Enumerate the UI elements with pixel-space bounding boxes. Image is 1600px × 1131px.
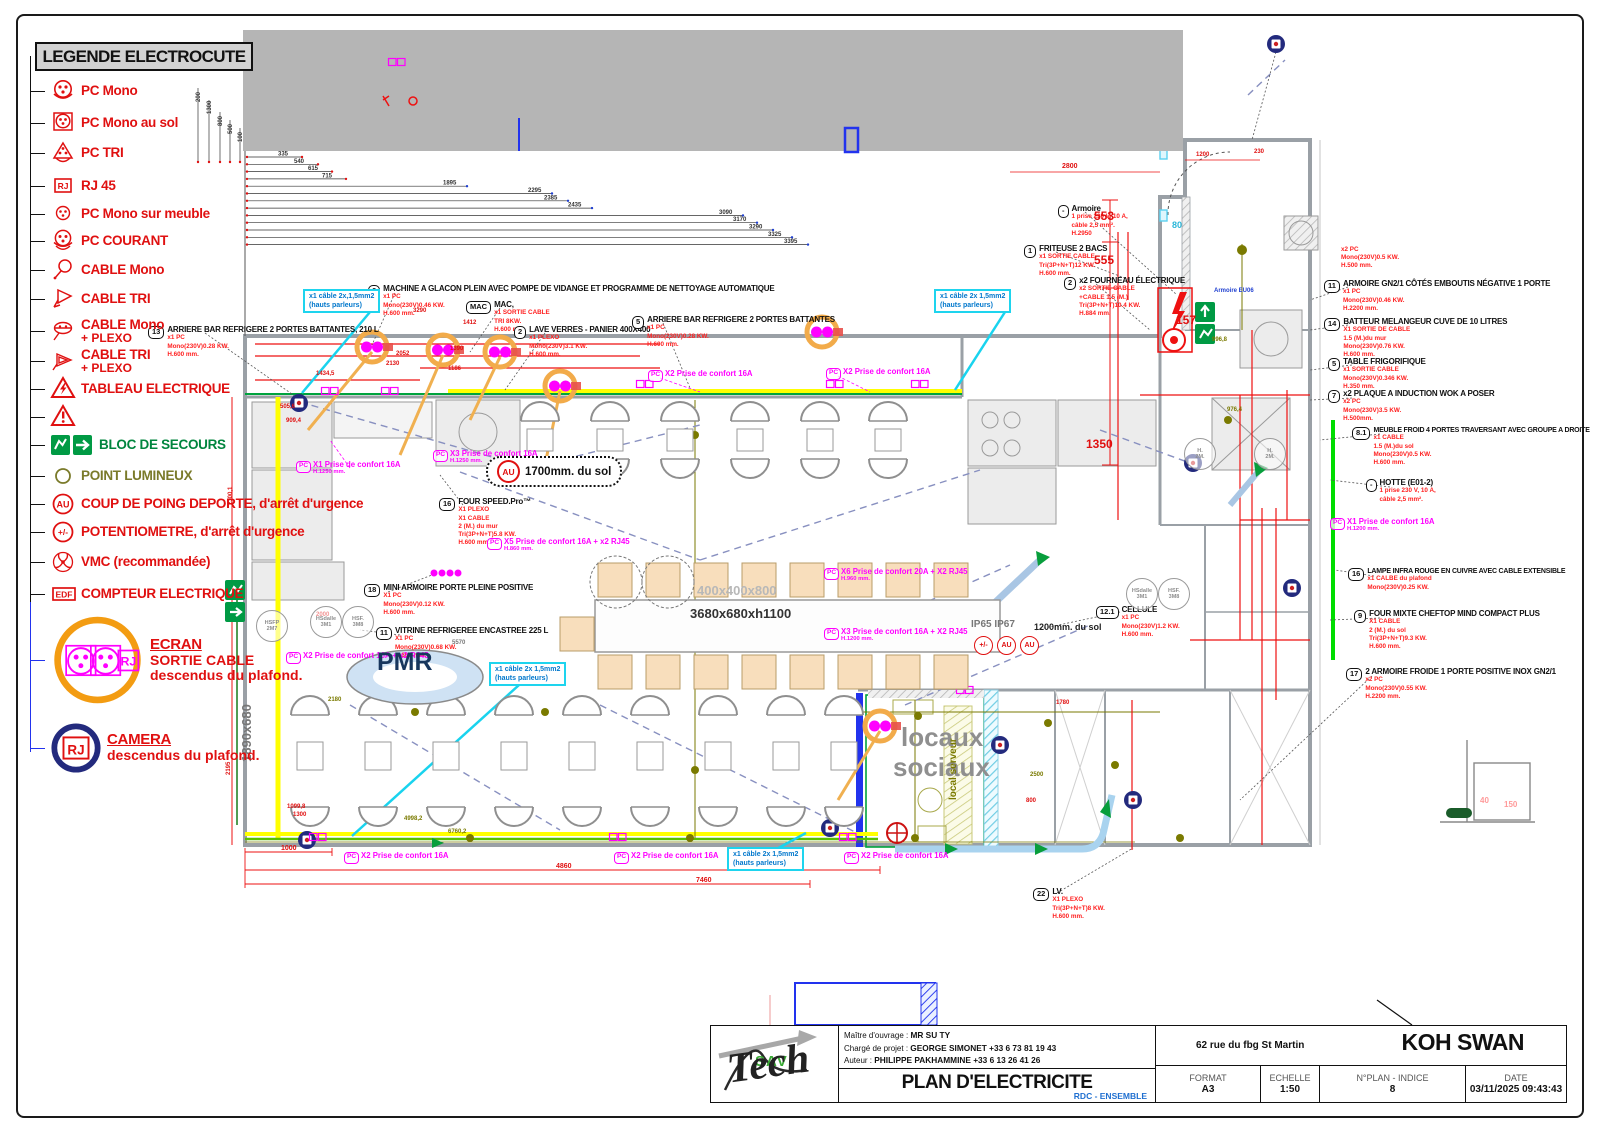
legend-item-label: CABLE Mono bbox=[81, 263, 164, 277]
scale-value: 1:50 bbox=[1280, 1084, 1300, 1095]
title-block-mid: Maître d'ouvrage : MR SU TY Chargé de pr… bbox=[839, 1026, 1156, 1102]
cable-mono-plexo-icon bbox=[50, 319, 76, 345]
legend-stem bbox=[30, 299, 45, 300]
legend-stem bbox=[30, 532, 45, 533]
legend-item-coup-de-poing-deporte-d-arr-t-d-urgence: COUP DE POING DEPORTE, d'arrêt d'urgence bbox=[30, 491, 363, 517]
legend-label-wrap: BLOC DE SECOURS bbox=[99, 438, 226, 452]
plan-number-label: N°PLAN - INDICE bbox=[1356, 1073, 1428, 1083]
legend-item-camera: CAMERAdescendus du plafond. bbox=[30, 722, 259, 774]
legend-label-wrap: PC Mono bbox=[81, 84, 137, 98]
titleblock-extras bbox=[770, 983, 1412, 1025]
legend-item-label: TABLEAU ELECTRIQUE bbox=[81, 382, 230, 396]
potm-icon bbox=[50, 519, 76, 545]
pc-meuble-icon bbox=[50, 201, 76, 227]
legend-item-pc-mono-au-sol: PC Mono au sol bbox=[30, 110, 178, 136]
title-block-cells: FORMAT A3 ECHELLE 1:50 N°PLAN - INDICE 8… bbox=[1156, 1066, 1566, 1102]
legend-item-pc-tri: PC TRI bbox=[30, 140, 123, 166]
legend-item-label: PC Mono sur meuble bbox=[81, 207, 210, 221]
format-value: A3 bbox=[1202, 1084, 1215, 1095]
legend-item-label: POINT LUMINEUX bbox=[81, 469, 192, 483]
legend-item-cable-mono: CABLE Mono+ PLEXO bbox=[30, 318, 164, 345]
document-subtitle: RDC - ENSEMBLE bbox=[1074, 1091, 1147, 1101]
legend-item-label: CABLE Mono bbox=[81, 318, 164, 332]
pc-tri-icon bbox=[50, 140, 76, 166]
legend-item-label: PC Mono au sol bbox=[81, 116, 178, 130]
plan-number-value: 8 bbox=[1390, 1084, 1396, 1095]
legend-stem bbox=[30, 91, 45, 92]
masked-region bbox=[243, 30, 1183, 151]
scale-label: ECHELLE bbox=[1269, 1073, 1310, 1083]
rj45-icon bbox=[50, 173, 76, 199]
legend-item-compteur-electrique: COMPTEUR ELECTRIQUE bbox=[30, 581, 243, 607]
author-label: Auteur : bbox=[844, 1056, 872, 1065]
legend-item-label: RJ 45 bbox=[81, 179, 116, 193]
legend-item-bloc-de-secours: BLOC DE SECOURS bbox=[30, 432, 226, 458]
legend-stem bbox=[30, 186, 45, 187]
pc-courant-icon bbox=[50, 228, 76, 254]
title-block: SAV Tech Maître d'ouvrage : MR SU TY Cha… bbox=[710, 1025, 1567, 1103]
legend-item-label: PC Mono bbox=[81, 84, 137, 98]
author-value: PHILIPPE PAKHAMMINE +33 6 13 26 41 26 bbox=[874, 1055, 1040, 1065]
legend-label-wrap: VMC (recommandée) bbox=[81, 555, 210, 569]
legend-stem bbox=[30, 748, 45, 749]
project-contacts: Maître d'ouvrage : MR SU TY Chargé de pr… bbox=[839, 1026, 1155, 1069]
legend-stem bbox=[30, 417, 45, 418]
legend-stem bbox=[30, 562, 45, 563]
legend-item-label: PC COURANT bbox=[81, 234, 168, 248]
dimension-value: 2435 bbox=[568, 203, 582, 209]
scale-cell: ECHELLE 1:50 bbox=[1261, 1066, 1320, 1102]
cable-mono-icon bbox=[50, 257, 76, 283]
legend-stem bbox=[30, 361, 45, 362]
legend-label-wrap: CABLE Mono bbox=[81, 263, 164, 277]
owner-label: Maître d'ouvrage : bbox=[844, 1031, 908, 1040]
legend-item-pc-courant: PC COURANT bbox=[30, 228, 168, 254]
document-title-cell: PLAN D'ELECTRICITE RDC - ENSEMBLE bbox=[839, 1069, 1155, 1102]
legend-stem bbox=[30, 153, 45, 154]
legend-item-vmc-recommand-e-: VMC (recommandée) bbox=[30, 549, 210, 575]
legend-stem bbox=[30, 504, 45, 505]
sav-tech-logo: SAV Tech bbox=[711, 1026, 839, 1102]
legend-item-label: VMC (recommandée) bbox=[81, 555, 210, 569]
legend-item-sublabel: descendus du plafond. bbox=[150, 668, 302, 683]
legend-stem bbox=[30, 331, 45, 332]
tableau-icon bbox=[50, 376, 76, 402]
title-block-right: 62 rue du fbg St Martin KOH SWAN FORMAT … bbox=[1156, 1026, 1566, 1102]
warning-icon bbox=[50, 404, 76, 430]
format-cell: FORMAT A3 bbox=[1156, 1066, 1261, 1102]
legend-stem bbox=[30, 214, 45, 215]
cable-tri-icon bbox=[50, 286, 76, 312]
legend-item-warning bbox=[30, 404, 81, 430]
bloc-icon bbox=[50, 432, 94, 458]
legend-item-label: COUP DE POING DEPORTE, d'arrêt d'urgence bbox=[81, 497, 363, 511]
project-address: 62 rue du fbg St Martin bbox=[1196, 1040, 1304, 1051]
date-value: 03/11/2025 09:43:43 bbox=[1470, 1084, 1562, 1095]
legend-stem bbox=[30, 123, 45, 124]
vmc-icon bbox=[50, 549, 76, 575]
legend-item-potentiometre-d-arr-t-d-urgence: POTENTIOMETRE, d'arrêt d'urgence bbox=[30, 519, 304, 545]
legend-item-ecran: ECRANSORTIE CABLEdescendus du plafond. bbox=[30, 614, 302, 706]
point-icon bbox=[50, 463, 76, 489]
legend-item-sublabel: descendus du plafond. bbox=[107, 748, 259, 763]
legend-label-wrap: POINT LUMINEUX bbox=[81, 469, 192, 483]
dimension-value: 2385 bbox=[544, 195, 558, 201]
legend-item-label: CABLE TRI bbox=[81, 292, 150, 306]
legend-label-wrap: CABLE TRI+ PLEXO bbox=[81, 348, 150, 375]
legend-item-cable-tri: CABLE TRI+ PLEXO bbox=[30, 348, 150, 375]
camera-icon bbox=[50, 722, 102, 774]
legend-item-rj-45: RJ 45 bbox=[30, 173, 116, 199]
dimension-value: 3395 bbox=[784, 239, 798, 245]
legend-item-cable-tri: CABLE TRI bbox=[30, 286, 150, 312]
legend-label-wrap: RJ 45 bbox=[81, 179, 116, 193]
date-label: DATE bbox=[1504, 1073, 1527, 1083]
legend-item-label: CABLE TRI bbox=[81, 348, 150, 362]
manager-label: Chargé de projet : bbox=[844, 1044, 908, 1053]
dimension-value: 3325 bbox=[768, 232, 782, 238]
legend-stem bbox=[30, 389, 45, 390]
legend-item-point-lumineux: POINT LUMINEUX bbox=[30, 463, 192, 489]
date-cell: DATE 03/11/2025 09:43:43 bbox=[1466, 1066, 1566, 1102]
legend-label-wrap: POTENTIOMETRE, d'arrêt d'urgence bbox=[81, 525, 304, 539]
legend-label-wrap: CAMERAdescendus du plafond. bbox=[107, 732, 259, 763]
project-name: KOH SWAN bbox=[1402, 1029, 1525, 1056]
legend-item-sublabel: SORTIE CABLE bbox=[150, 653, 302, 668]
legend-item-sublabel: + PLEXO bbox=[81, 362, 150, 375]
project-address-cell: 62 rue du fbg St Martin KOH SWAN bbox=[1156, 1026, 1566, 1066]
legend-panel: LEGENDE ELECTROCUTE PC MonoPC Mono au so… bbox=[0, 0, 330, 800]
legend-label-wrap: PC TRI bbox=[81, 146, 123, 160]
legend-label-wrap: CABLE Mono+ PLEXO bbox=[81, 318, 164, 345]
legend-item-label: PC TRI bbox=[81, 146, 123, 160]
legend-stem bbox=[30, 594, 45, 595]
pc-mono-icon bbox=[50, 78, 76, 104]
plan-number-cell: N°PLAN - INDICE 8 bbox=[1320, 1066, 1466, 1102]
legend-item-label: ECRAN bbox=[150, 637, 302, 653]
dimension-value: 3290 bbox=[749, 225, 763, 231]
walls-layer bbox=[245, 140, 1320, 847]
dimension-value: 3170 bbox=[733, 217, 747, 223]
legend-label-wrap: PC Mono sur meuble bbox=[81, 207, 210, 221]
legend-label-wrap: COUP DE POING DEPORTE, d'arrêt d'urgence bbox=[81, 497, 363, 511]
drawing-sheet: RJ bbox=[0, 0, 1600, 1131]
dimension-value: 1895 bbox=[443, 181, 457, 187]
legend-item-label: BLOC DE SECOURS bbox=[99, 438, 226, 452]
pc-sol-icon bbox=[50, 110, 76, 136]
legend-label-wrap: PC COURANT bbox=[81, 234, 168, 248]
legend-stem bbox=[30, 241, 45, 242]
legend-item-label: POTENTIOMETRE, d'arrêt d'urgence bbox=[81, 525, 304, 539]
owner-value: MR SU TY bbox=[910, 1030, 950, 1040]
legend-label-wrap: TABLEAU ELECTRIQUE bbox=[81, 382, 230, 396]
dimension-value: 3090 bbox=[719, 210, 733, 216]
legend-item-pc-mono: PC Mono bbox=[30, 78, 137, 104]
legend-label-wrap: PC Mono au sol bbox=[81, 116, 178, 130]
manager-value: GEORGE SIMONET +33 6 73 81 19 43 bbox=[910, 1043, 1056, 1053]
edf-icon bbox=[50, 581, 76, 607]
legend-item-cable-mono: CABLE Mono bbox=[30, 257, 164, 283]
cable-tri-plexo-icon bbox=[50, 349, 76, 375]
legend-item-pc-mono-sur-meuble: PC Mono sur meuble bbox=[30, 201, 210, 227]
legend-stem bbox=[30, 476, 45, 477]
legend-stem bbox=[30, 660, 45, 661]
legend-label-wrap: CABLE TRI bbox=[81, 292, 150, 306]
dimension-value: 2295 bbox=[528, 188, 542, 194]
ecran-icon bbox=[50, 614, 145, 706]
legend-item-sublabel: + PLEXO bbox=[81, 332, 164, 345]
format-label: FORMAT bbox=[1189, 1073, 1226, 1083]
legend-label-wrap: COMPTEUR ELECTRIQUE bbox=[81, 587, 243, 601]
legend-stem bbox=[30, 270, 45, 271]
legend-item-label: CAMERA bbox=[107, 732, 259, 748]
au-icon bbox=[50, 491, 76, 517]
legend-item-tableau-electrique: TABLEAU ELECTRIQUE bbox=[30, 376, 230, 402]
legend-label-wrap: ECRANSORTIE CABLEdescendus du plafond. bbox=[150, 637, 302, 684]
legend-title: LEGENDE ELECTROCUTE bbox=[35, 42, 253, 71]
legend-item-label: COMPTEUR ELECTRIQUE bbox=[81, 587, 243, 601]
legend-stem bbox=[30, 445, 45, 446]
